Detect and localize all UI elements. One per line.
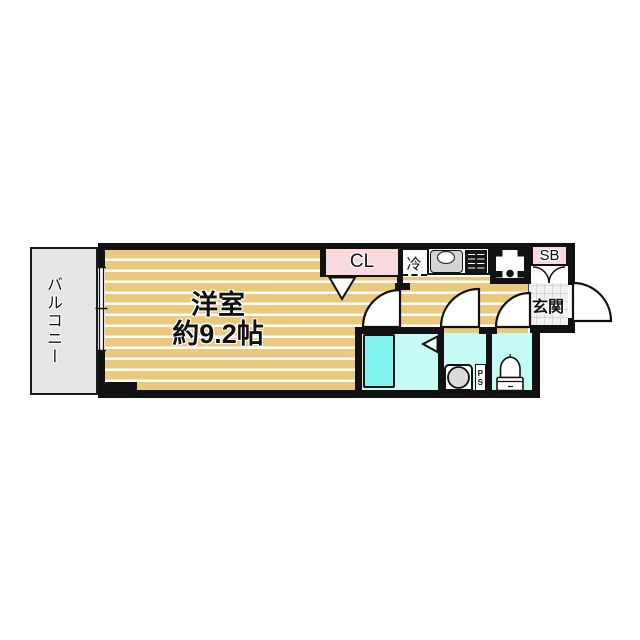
door-arc-main-room — [363, 290, 400, 327]
utility-corner-marks — [496, 250, 524, 278]
balcony-window — [96, 267, 108, 351]
stove-grill — [468, 252, 485, 270]
washer-drum — [448, 367, 469, 388]
sink-basin — [438, 252, 455, 264]
door-arc-toilet — [496, 293, 530, 327]
floorplan-canvas: バルコニー P S CL 冷 SB 洋室 約9.2帖 — [0, 0, 640, 640]
symbols-overlay — [0, 0, 640, 640]
entrance-door-arc — [573, 283, 611, 321]
door-arc-laundry — [441, 289, 479, 327]
bathroom-door-triangle — [423, 337, 438, 353]
utility-knob — [506, 270, 514, 278]
toilet — [497, 354, 523, 391]
closet-door-triangle — [330, 278, 356, 300]
shoebox-doors — [533, 267, 565, 283]
